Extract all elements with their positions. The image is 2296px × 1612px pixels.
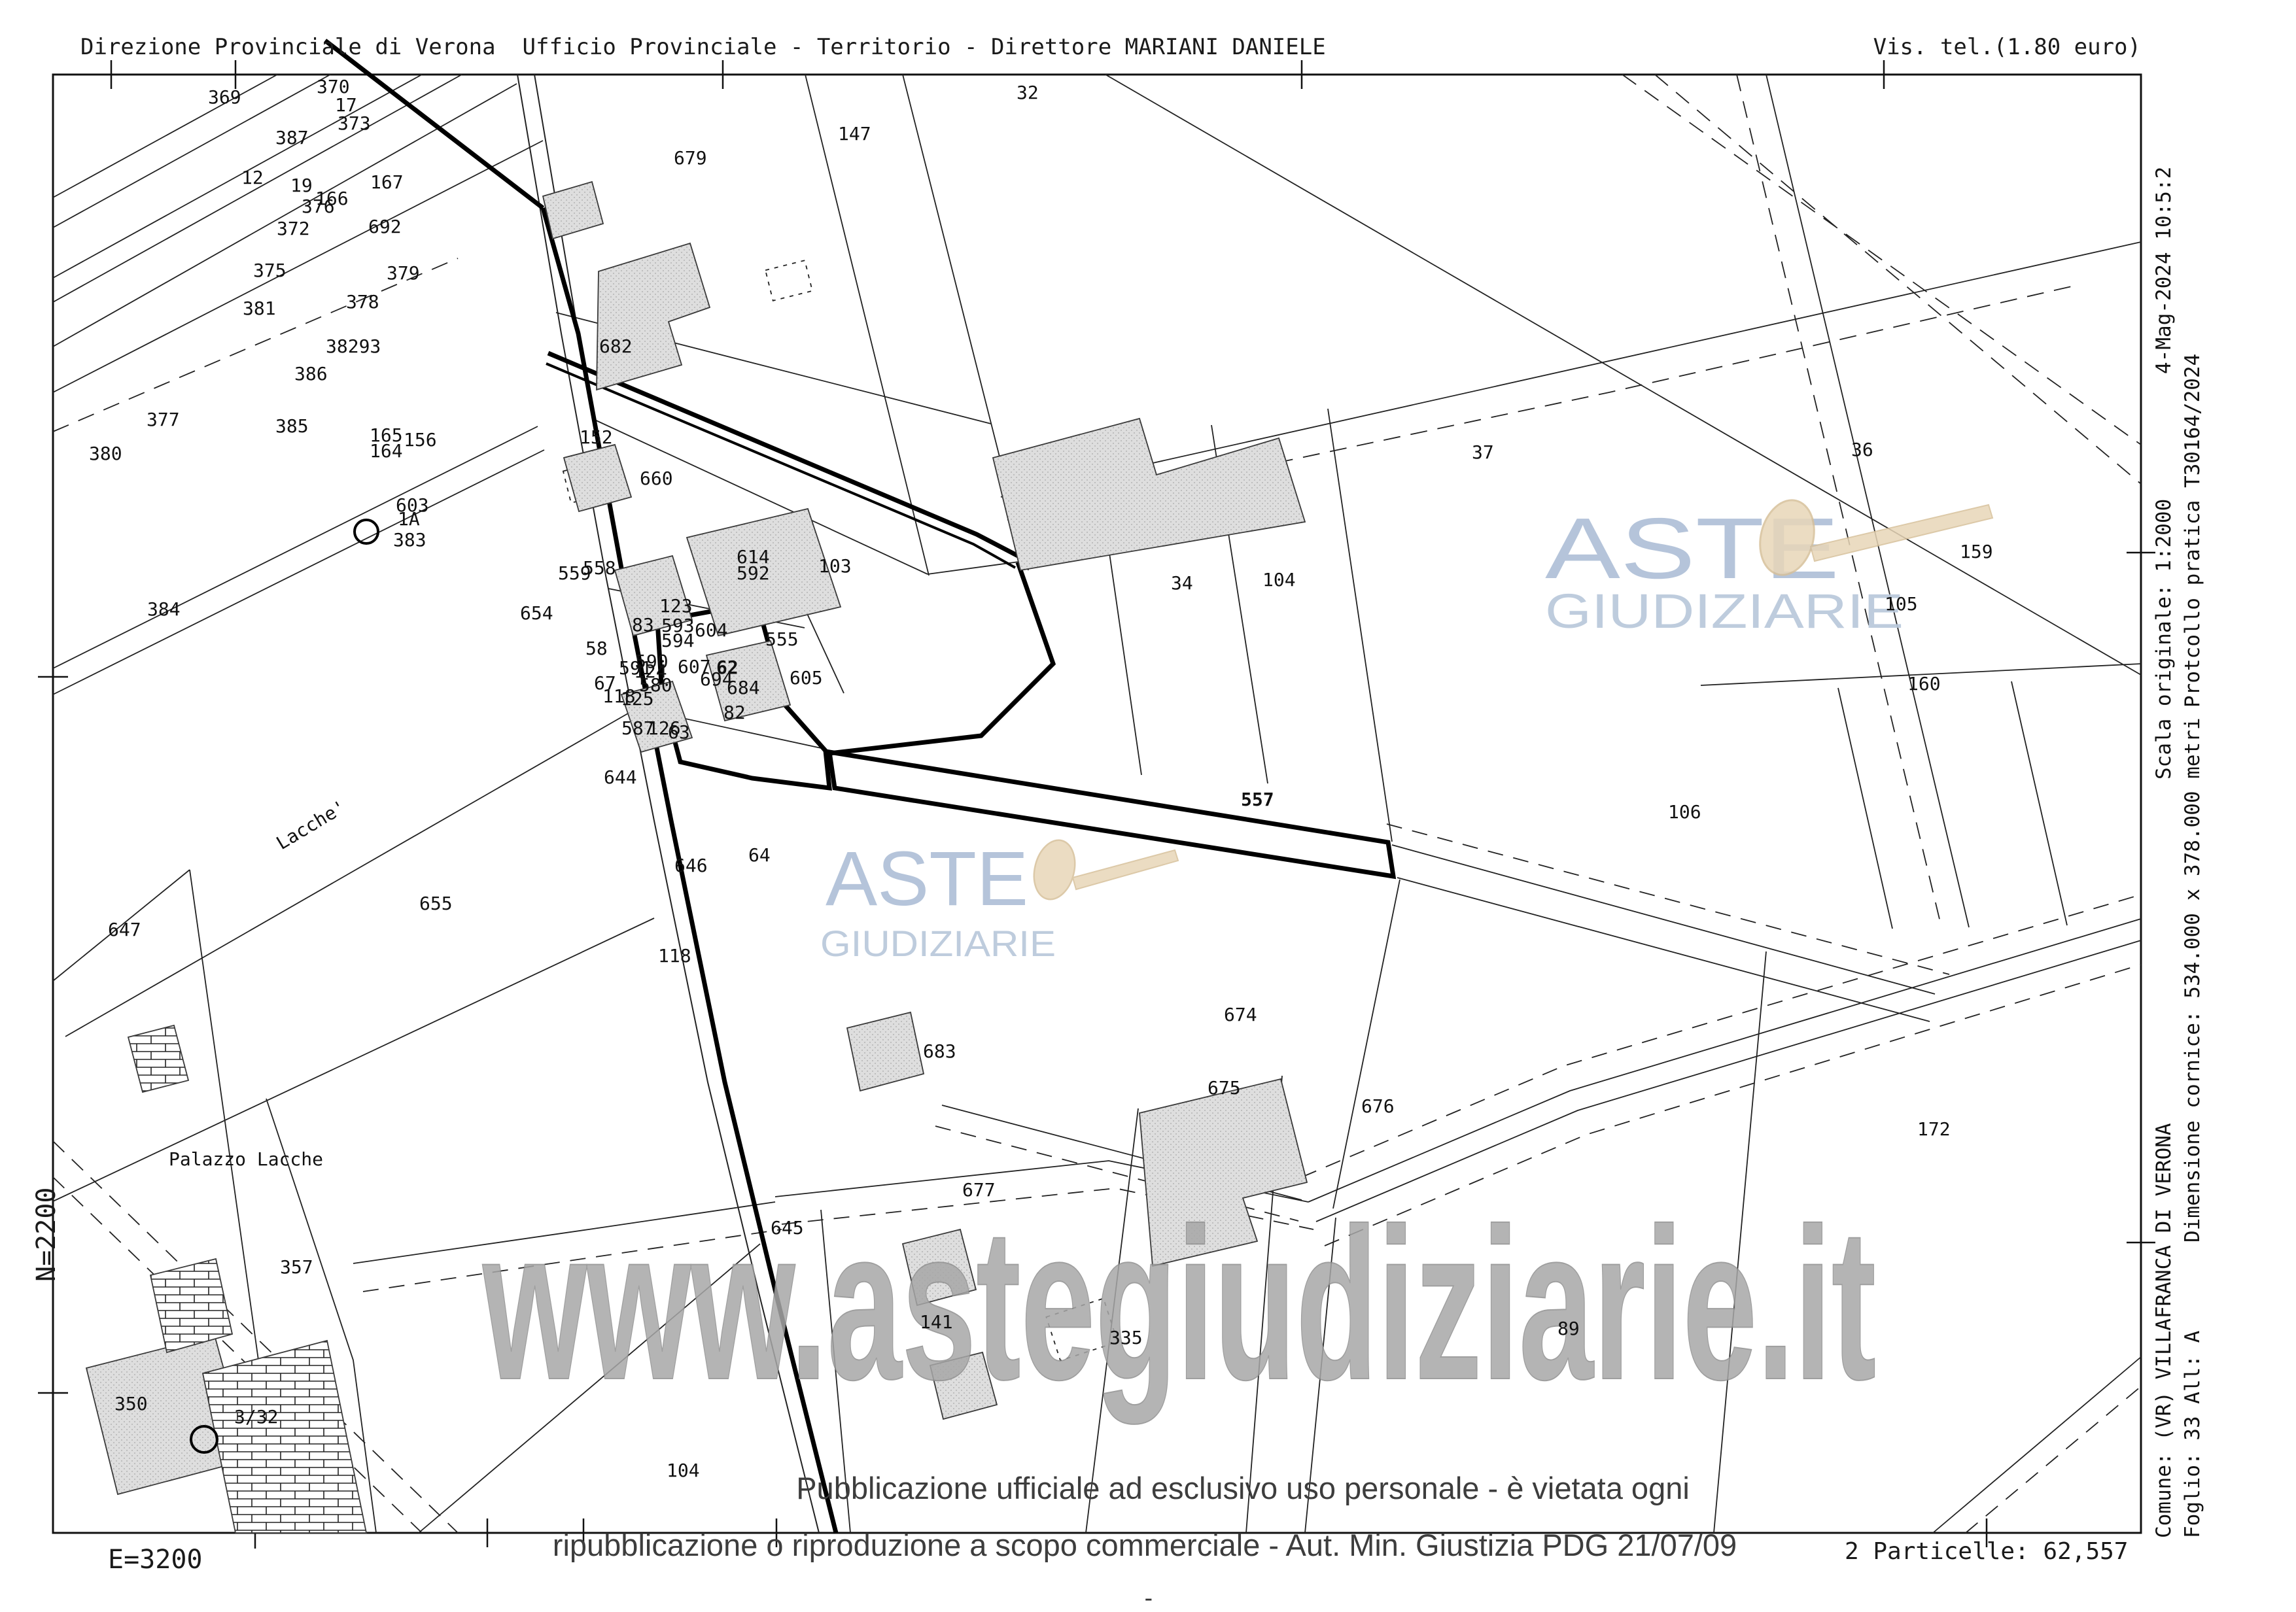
- parcel-label-1A: 1A: [398, 508, 420, 530]
- parcel-label-103: 103: [818, 555, 852, 577]
- header-vis-fee: Vis. tel.(1.80 euro): [1873, 34, 2141, 60]
- side-metadata-text: Foglio: 33 All: A: [2181, 1330, 2204, 1538]
- parcel-label-605: 605: [790, 667, 823, 689]
- parcel-label-350: 350: [114, 1393, 148, 1415]
- parcel-label-557: 557: [1241, 789, 1274, 810]
- parcel-label-385: 385: [275, 415, 309, 437]
- cadastral-map-canvas: ASTE GIUDIZIARIE ASTE GIUDIZIARIE www.as…: [0, 0, 2296, 1609]
- parcel-label-654: 654: [520, 602, 553, 624]
- parcel-label-167: 167: [370, 171, 404, 193]
- parcel-label-19: 19: [290, 175, 313, 196]
- aste-giudiziarie-logo-right: ASTE GIUDIZIARIE: [1545, 494, 1992, 638]
- aste-giudiziarie-logo-center: ASTE GIUDIZIARIE: [820, 836, 1178, 964]
- parcel-label-38293: 38293: [326, 335, 381, 357]
- parcel-label-118: 118: [658, 945, 691, 967]
- parcel-label-594: 594: [661, 630, 695, 651]
- parcel-label-380: 380: [89, 443, 122, 464]
- parcel-label-660: 660: [640, 468, 673, 489]
- document-header: Direzione Provinciale di Verona Ufficio …: [80, 34, 2141, 60]
- parcel-label-125: 125: [621, 688, 654, 710]
- parcel-label-37: 37: [1472, 441, 1494, 463]
- east-coordinate-label: E=3200: [108, 1545, 203, 1575]
- parcel-label-104: 104: [1262, 569, 1296, 591]
- parcel-label-644: 644: [604, 766, 637, 788]
- parcel-label-372: 372: [277, 218, 310, 239]
- parcel-label-655: 655: [419, 893, 453, 914]
- parcel-label-63: 63: [668, 721, 690, 743]
- parcel-label-676: 676: [1361, 1095, 1395, 1117]
- footer-dash-mark: -: [1141, 1585, 1156, 1612]
- parcel-label-683: 683: [923, 1040, 956, 1062]
- parcel-label-172: 172: [1917, 1118, 1951, 1140]
- parcel-label-123: 123: [659, 595, 693, 617]
- watermark-url: www.astegiudiziarie.it: [481, 1183, 1876, 1426]
- parcel-label-684: 684: [727, 677, 760, 698]
- parcel-label-PalazzoLacche: Palazzo Lacche: [169, 1148, 323, 1170]
- parcel-label-381: 381: [243, 298, 276, 319]
- parcel-label-36: 36: [1851, 439, 1873, 460]
- point-marker: [355, 520, 378, 543]
- side-metadata-text: Dimensione cornice: 534.000 x 378.000 me…: [2181, 717, 2204, 1243]
- parcel-label-674: 674: [1224, 1004, 1257, 1025]
- parcel-label-679: 679: [674, 147, 707, 169]
- parcel-label-58: 58: [585, 638, 608, 659]
- parcel-label-604: 604: [695, 619, 728, 641]
- parcel-label-383: 383: [393, 529, 426, 551]
- parcel-label-377: 377: [147, 409, 180, 430]
- parcel-label-164: 164: [370, 440, 403, 462]
- parcel-label-376: 376: [302, 196, 335, 217]
- footer-disclaimer-line1: Pubblicazione ufficiale ad esclusivo uso…: [654, 1470, 1832, 1506]
- parcel-label-159: 159: [1960, 541, 1993, 562]
- parcel-label-156: 156: [404, 429, 437, 451]
- parcel-label-335: 335: [1109, 1327, 1143, 1348]
- parcel-label-682: 682: [599, 335, 633, 357]
- header-office-title: Direzione Provinciale di Verona Ufficio …: [80, 34, 1326, 60]
- parcel-label-83: 83: [632, 614, 654, 636]
- parcel-label-373: 373: [338, 112, 371, 134]
- parcel-label-12: 12: [241, 167, 264, 188]
- side-metadata-text: Comune: (VR) VILLAFRANCA DI VERONA: [2152, 1123, 2176, 1538]
- parcel-label-105: 105: [1885, 593, 1918, 615]
- side-metadata-text: Scala originale: 1:2000: [2152, 499, 2176, 780]
- parcel-label-34: 34: [1171, 572, 1193, 594]
- side-metadata-text: Protcollo pratica T30164/2024: [2181, 354, 2204, 708]
- parcel-label-332: 3/32: [234, 1406, 278, 1428]
- footer-disclaimer-line2: ripubblicazione o riproduzione a scopo c…: [458, 1527, 1832, 1563]
- parcel-label-692: 692: [368, 216, 402, 237]
- logo-giudiziarie-text: GIUDIZIARIE: [820, 923, 1056, 964]
- logo-giudiziarie-text: GIUDIZIARIE: [1545, 584, 1904, 638]
- parcel-label-675: 675: [1208, 1077, 1241, 1099]
- parcel-label-89: 89: [1557, 1318, 1580, 1339]
- parcel-label-152: 152: [580, 426, 613, 448]
- logo-aste-text: ASTE: [826, 836, 1028, 922]
- parcel-label-646: 646: [674, 855, 708, 876]
- parcel-label-141: 141: [920, 1311, 953, 1333]
- footer-particelle-count: 2 Particelle: 62,557: [1845, 1538, 2128, 1565]
- north-coordinate-label: N=2200: [31, 1188, 61, 1282]
- parcel-label-647: 647: [108, 919, 141, 940]
- gavel-icon: [1028, 836, 1178, 904]
- parcel-label-387: 387: [275, 127, 309, 148]
- parcel-label-677: 677: [962, 1179, 996, 1201]
- cadastral-map-page: ASTE GIUDIZIARIE ASTE GIUDIZIARIE www.as…: [0, 0, 2296, 1609]
- parcel-label-558: 558: [583, 557, 616, 579]
- parcel-label-357: 357: [280, 1256, 313, 1278]
- parcel-label-106: 106: [1668, 801, 1701, 823]
- parcel-label-645: 645: [771, 1217, 804, 1239]
- parcel-label-555: 555: [765, 628, 799, 650]
- parcel-label-369: 369: [208, 86, 241, 108]
- side-metadata-text: 4-Mag-2024 10:5:2: [2152, 167, 2176, 374]
- side-metadata-layer: Comune: (VR) VILLAFRANCA DI VERONAScala …: [2152, 167, 2204, 1538]
- parcel-label-82: 82: [723, 702, 746, 723]
- parcel-label-379: 379: [387, 262, 420, 284]
- parcel-label-384: 384: [147, 598, 181, 620]
- parcel-label-378: 378: [346, 291, 379, 313]
- parcel-label-147: 147: [838, 123, 871, 145]
- parcel-label-592: 592: [737, 562, 770, 584]
- parcel-label-160: 160: [1907, 673, 1941, 695]
- parcel-label-Lacche: Lacche': [273, 796, 350, 854]
- parcel-label-386: 386: [294, 363, 328, 385]
- parcel-label-375: 375: [253, 260, 287, 281]
- parcel-label-64: 64: [748, 844, 771, 866]
- parcel-label-32: 32: [1017, 82, 1039, 103]
